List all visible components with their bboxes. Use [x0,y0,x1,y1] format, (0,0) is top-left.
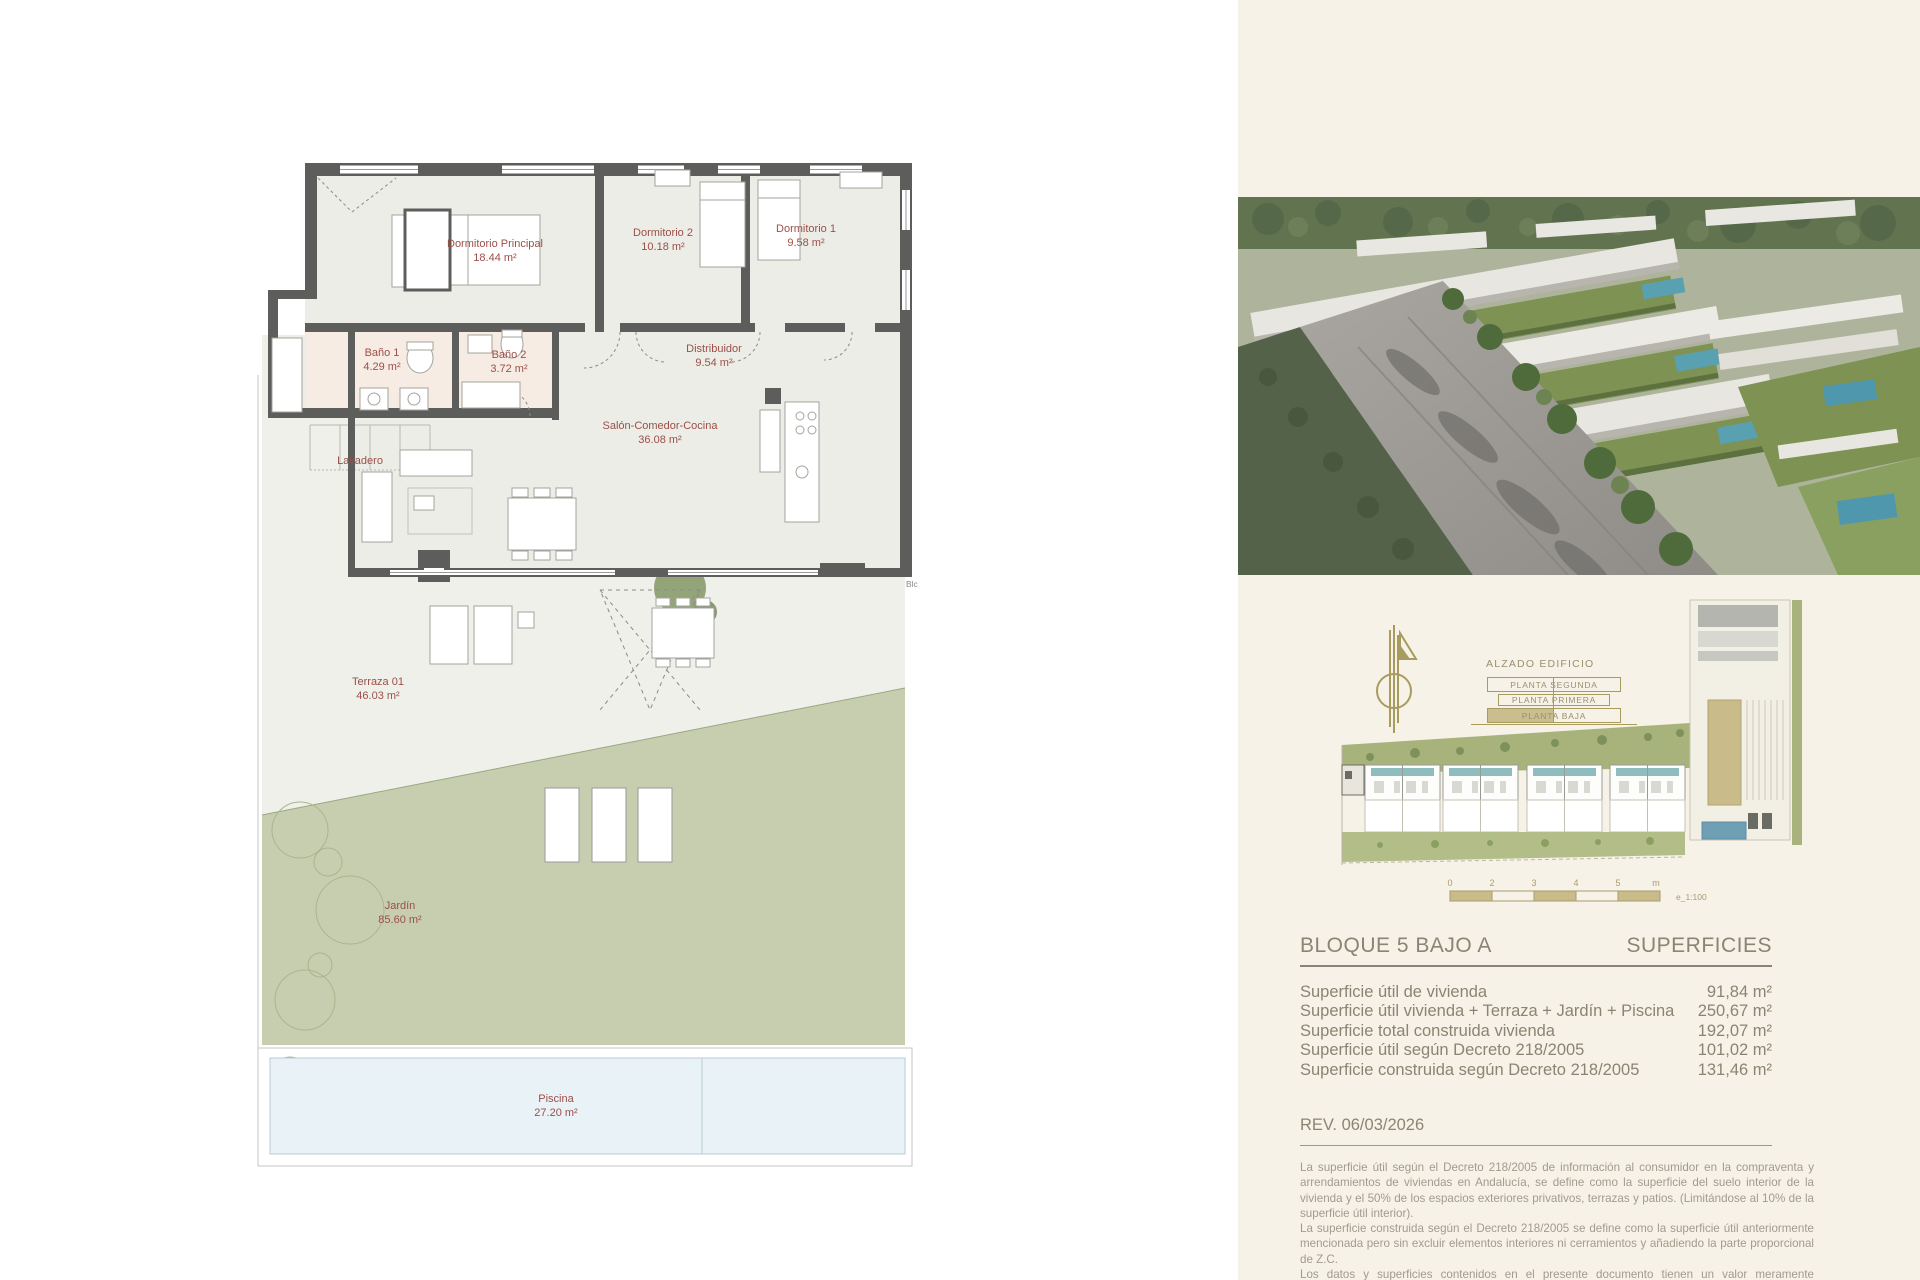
site-plan: 0 2 3 4 5 m e_1:100 [1340,595,1805,925]
room-label: Dormitorio 2 [633,227,693,239]
disclaimer-paragraph: La superficie útil según el Decreto 218/… [1300,1160,1814,1221]
table-row: Superficie útil de vivienda91,84 m² [1300,983,1772,1002]
pool-area [270,1058,905,1154]
superficies-title: SUPERFICIES [1626,934,1772,958]
room-label: Dormitorio Principal [447,238,543,250]
svg-text:36.08 m²: 36.08 m² [638,434,682,446]
room-label: Baño 1 [365,347,400,359]
scale-bar: 0 2 3 4 5 m e_1:100 [1447,878,1707,902]
room-label: Salón-Comedor-Cocina [603,420,719,432]
legal-disclaimer: La superficie útil según el Decreto 218/… [1300,1160,1814,1280]
revision-rule [1300,1145,1772,1146]
superficies-table: Superficie útil de vivienda91,84 m² Supe… [1300,983,1772,1080]
svg-text:3.72 m²: 3.72 m² [490,363,528,375]
table-row: Superficie total construida vivienda192,… [1300,1022,1772,1041]
disclaimer-paragraph: Los datos y superficies contenidos en el… [1300,1267,1814,1280]
svg-text:9.58 m²: 9.58 m² [787,237,825,249]
svg-text:10.18 m²: 10.18 m² [641,241,685,253]
room-label: Baño 2 [492,349,527,361]
svg-text:4: 4 [1573,878,1578,888]
scale-note: e_1:100 [1676,892,1707,902]
svg-text:85.60 m²: 85.60 m² [378,914,422,926]
site-plan-block5 [1690,600,1802,845]
room-label: Lavadero [337,455,383,467]
svg-text:5: 5 [1615,878,1620,888]
cut-side-label: Blc [906,579,919,589]
brochure-page: Dormitorio Principal 18.44 m² Dormitorio… [0,0,1920,1280]
svg-text:18.44 m²: 18.44 m² [473,252,517,264]
svg-text:27.20 m²: 27.20 m² [534,1107,578,1119]
floor-plan: Dormitorio Principal 18.44 m² Dormitorio… [200,120,950,1200]
room-label: Jardín [385,900,416,912]
aerial-photo [1238,197,1920,575]
disclaimer-paragraph: La superficie construida según el Decret… [1300,1221,1814,1267]
header-rule [1300,965,1772,967]
superficies-header: BLOQUE 5 BAJO A SUPERFICIES [1300,934,1772,958]
table-row: Superficie construida según Decreto 218/… [1300,1061,1772,1080]
svg-text:4.29 m²: 4.29 m² [363,361,401,373]
room-label: Terraza 01 [352,676,404,688]
svg-text:46.03 m²: 46.03 m² [356,690,400,702]
svg-text:m: m [1652,878,1660,888]
revision-date: REV. 06/03/2026 [1300,1116,1424,1135]
site-plan-units [1365,765,1685,832]
svg-text:3: 3 [1531,878,1536,888]
svg-text:0: 0 [1447,878,1452,888]
table-row: Superficie útil vivienda + Terraza + Jar… [1300,1002,1772,1021]
room-label: Dormitorio 1 [776,223,836,235]
svg-text:2: 2 [1489,878,1494,888]
room-label: Piscina [538,1093,574,1105]
table-row: Superficie útil según Decreto 218/200510… [1300,1041,1772,1060]
room-label: Distribuidor [686,343,742,355]
svg-text:9.54 m²: 9.54 m² [695,357,733,369]
block-title: BLOQUE 5 BAJO A [1300,934,1492,958]
